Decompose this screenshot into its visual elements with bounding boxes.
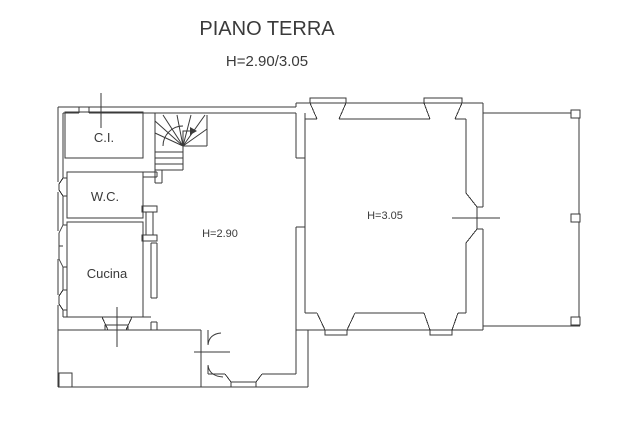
window-bottom-1-reveal xyxy=(317,313,355,330)
room-label-cucina: Cucina xyxy=(87,266,128,281)
height-label-305: H=3.05 xyxy=(367,210,403,222)
window-bottom-2-reveal xyxy=(424,313,458,330)
room-label-wc: W.C. xyxy=(91,189,119,204)
door-pier-cap-top xyxy=(142,206,157,212)
porch-edges xyxy=(483,113,580,326)
floor-plan-page: PIANO TERRA H=2.90/3.05 C.I. W.C. Cucina… xyxy=(0,0,640,447)
window-top-2-reveal xyxy=(424,103,462,119)
kitchen-window-reveal xyxy=(102,307,132,347)
window-top-1-reveal xyxy=(310,103,346,119)
dividing-wall xyxy=(296,113,305,330)
page-subtitle: H=2.90/3.05 xyxy=(226,53,308,70)
plan-curves xyxy=(155,115,223,377)
kitchen-left-window-1 xyxy=(59,225,67,267)
room-label-ci: C.I. xyxy=(94,130,114,145)
stairs-flight xyxy=(155,113,207,170)
porch-pillar-top xyxy=(571,110,580,118)
terrace-pillar xyxy=(59,373,72,387)
window-top-1-cap xyxy=(310,98,346,103)
entrance-door-reveal xyxy=(225,374,262,382)
door-pier-stem xyxy=(146,212,153,235)
door-swing-arc-upper xyxy=(208,333,221,345)
floor-plan-drawing: PIANO TERRA H=2.90/3.05 C.I. W.C. Cucina… xyxy=(0,0,640,447)
window-right-reveal xyxy=(452,193,500,243)
stairs-winder-fan xyxy=(155,115,207,146)
door-swing-arc-lower xyxy=(208,365,223,377)
window-bottom-2-sill xyxy=(430,330,452,335)
kitchen-left-window-2 xyxy=(59,290,67,310)
vestibule-right-wall xyxy=(296,330,308,387)
porch-pillar-bottom xyxy=(571,317,580,325)
window-bottom-1-sill xyxy=(325,330,347,335)
outer-wall-top xyxy=(58,103,296,107)
plan-labels: PIANO TERRA H=2.90/3.05 C.I. W.C. Cucina… xyxy=(87,18,403,281)
window-top-2-cap xyxy=(424,98,462,103)
wc-left-window xyxy=(59,178,67,196)
kitchen-side-wall xyxy=(151,243,157,330)
entrance-door-sill xyxy=(231,382,256,387)
vestibule-left-wall xyxy=(201,330,208,387)
porch-pillar-middle xyxy=(571,214,580,222)
height-label-290: H=2.90 xyxy=(202,228,238,240)
page-title: PIANO TERRA xyxy=(199,18,335,40)
door-pier-cap-bottom xyxy=(142,235,157,241)
plan-walls xyxy=(58,93,580,387)
